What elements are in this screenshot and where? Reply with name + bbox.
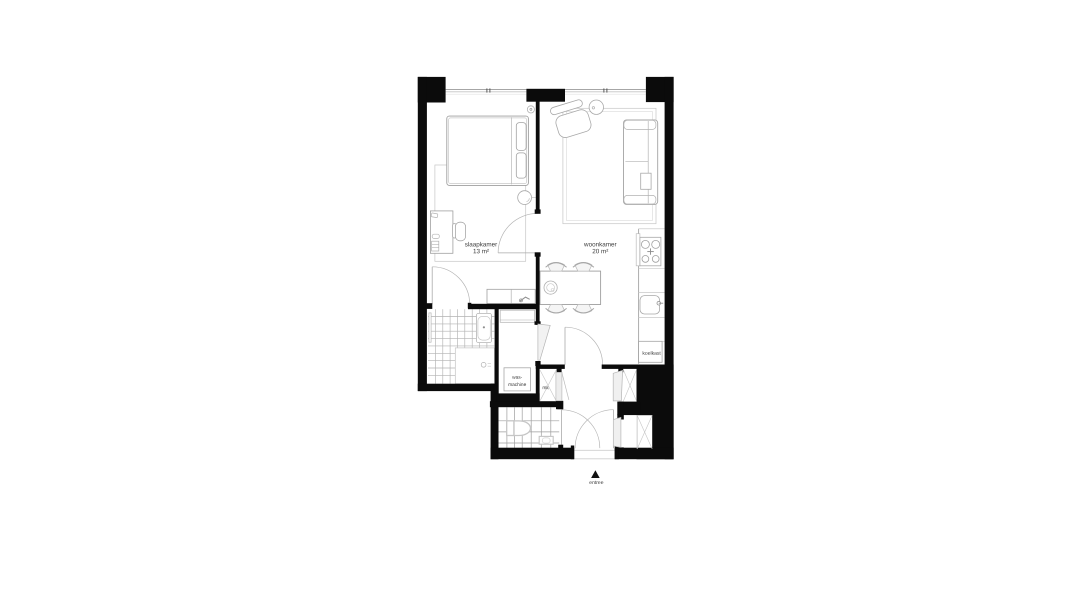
svg-text:machine: machine xyxy=(508,382,526,388)
svg-text:13 m²: 13 m² xyxy=(473,248,489,255)
svg-text:mk: mk xyxy=(542,385,549,391)
svg-text:20 m²: 20 m² xyxy=(592,248,608,255)
svg-text:entree: entree xyxy=(589,480,603,486)
svg-text:was-: was- xyxy=(512,376,523,381)
svg-text:koelkast: koelkast xyxy=(642,351,661,357)
